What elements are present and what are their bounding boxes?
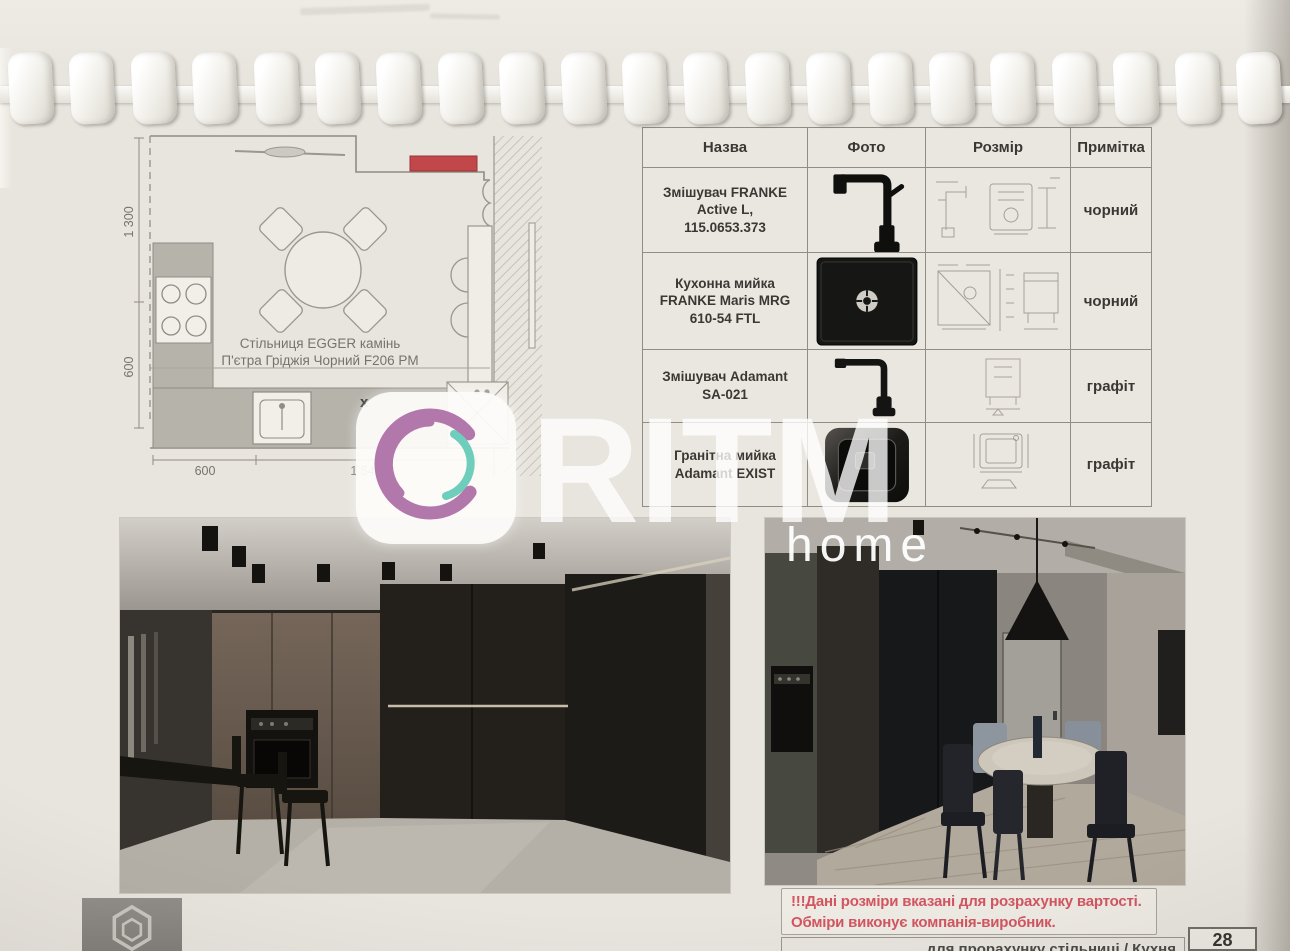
spiral-binding [0, 46, 1290, 132]
size-drawing-cell [926, 168, 1071, 253]
binding-comb-band [191, 51, 239, 125]
page-number-box: 28 [1188, 927, 1257, 951]
binding-comb-band [560, 51, 608, 125]
faucet-dimension-sketch [928, 170, 1068, 250]
dim-bottom-left: 600 [195, 464, 216, 478]
title-block: для прорахунку стільниці / Кухня [781, 937, 1185, 951]
floor-plan-drawing: x Стільниця EGGER камінь П'єтра Гріджія … [113, 130, 557, 486]
binding-comb-band [1174, 51, 1222, 125]
binding-comb [432, 46, 493, 132]
dim-bottom-right: 1 540 [350, 464, 381, 478]
binding-comb-band [990, 51, 1038, 125]
sink-dimension-sketch [928, 426, 1068, 504]
black-square-sink-photo [813, 255, 921, 348]
row-name: Змішувач Adamant SA-021 [643, 350, 808, 423]
binding-comb-band [621, 51, 669, 125]
kitchen-render-left [120, 518, 730, 893]
black-faucet-photo [824, 351, 910, 421]
binding-comb [677, 46, 738, 132]
dim-left-lower: 600 [122, 357, 136, 378]
binding-comb [125, 46, 186, 132]
sink-dimension-sketch [928, 255, 1068, 347]
row-name: Гранітна мийка Adamant EXIST [643, 423, 808, 507]
binding-comb [800, 46, 861, 132]
binding-comb [248, 46, 309, 132]
title-block-text: для прорахунку стільниці / Кухня [927, 941, 1176, 951]
seat-arc [451, 258, 468, 292]
binding-comb-band [744, 51, 792, 125]
column-header-photo: Фото [808, 128, 926, 168]
worktop-label-line2: П'єтра Гріджія Чорний F206 PM [221, 353, 418, 368]
disclaimer-line1: !!!Дані розміри вказані для розрахунку в… [791, 892, 1156, 913]
seat-arc [451, 303, 468, 337]
product-photo-cell [808, 168, 926, 253]
right-counter [468, 226, 492, 402]
size-drawing-cell [926, 423, 1071, 507]
binding-comb-band [1235, 51, 1283, 125]
disclaimer-line2: Обміри виконує компанія-виробник. [791, 913, 1156, 934]
tv-panel [1158, 630, 1185, 735]
binding-comb [2, 46, 63, 132]
binding-comb-band [928, 51, 976, 125]
column-header-name: Назва [643, 128, 808, 168]
red-radiator [410, 156, 477, 171]
binding-comb-band [437, 51, 485, 125]
worktop-label-line1: Стільниця EGGER камінь [240, 336, 401, 351]
bottle [1033, 716, 1042, 758]
built-in-oven [771, 666, 813, 752]
kitchen-floor-plan: x Стільниця EGGER камінь П'єтра Гріджія … [113, 130, 557, 486]
dark-column [817, 546, 879, 853]
size-drawing-cell [926, 253, 1071, 350]
binding-comb-band [130, 51, 178, 125]
page-edge-shadow [1244, 0, 1290, 951]
binding-comb [923, 46, 984, 132]
binding-comb [555, 46, 616, 132]
x-mark: x [360, 394, 369, 411]
kitchen-render-photo-left [120, 518, 730, 893]
column-header-note: Примітка [1071, 128, 1152, 168]
binding-comb [63, 46, 124, 132]
company-logo-glyph [104, 898, 160, 951]
binding-comb-band [1112, 51, 1160, 125]
photographed-document-page: x Стільниця EGGER камінь П'єтра Гріджія … [0, 0, 1290, 951]
size-drawing-cell [926, 350, 1071, 423]
spec-table: Назва Фото Розмір Примітка Змішувач FRAN… [642, 127, 1152, 507]
binding-comb-band [376, 51, 424, 125]
dark-granite-sink-photo [817, 424, 917, 506]
disclaimer-note: !!!Дані розміри вказані для розрахунку в… [781, 888, 1157, 935]
binding-comb [1169, 46, 1230, 132]
binding-comb-band [683, 51, 731, 125]
binding-comb-band [7, 51, 55, 125]
binding-comb-band [805, 51, 853, 125]
binding-comb [1230, 46, 1290, 132]
binding-comb-band [69, 51, 117, 125]
binding-comb-band [1051, 51, 1099, 125]
binding-comb [739, 46, 800, 132]
binding-comb-band [314, 51, 362, 125]
row-note: чорний [1071, 168, 1152, 253]
row-name: Кухонна мийка FRANKE Maris MRG 610-54 FT… [643, 253, 808, 350]
binding-comb [1046, 46, 1107, 132]
product-photo-cell [808, 423, 926, 507]
dim-left-upper: 1 300 [122, 206, 136, 237]
row-note: чорний [1071, 253, 1152, 350]
dining-table [285, 232, 361, 308]
binding-comb [493, 46, 554, 132]
company-logo [82, 898, 182, 951]
ceiling-light-lens [265, 147, 305, 157]
dishwasher-symbol [447, 382, 508, 444]
window-symbol [529, 223, 535, 348]
black-faucet-photo [821, 168, 913, 253]
product-photo-cell [808, 350, 926, 423]
column-header-size: Розмір [926, 128, 1071, 168]
row-name: Змішувач FRANKE Active L, 115.0653.373 [643, 168, 808, 253]
binding-comb [984, 46, 1045, 132]
binding-comb [862, 46, 923, 132]
binding-comb [616, 46, 677, 132]
faucet-dimension-sketch [928, 353, 1068, 419]
page-number: 28 [1212, 929, 1232, 949]
product-photo-cell [808, 253, 926, 350]
binding-comb [370, 46, 431, 132]
binding-comb [186, 46, 247, 132]
row-note: графіт [1071, 423, 1152, 507]
binding-comb-band [498, 51, 546, 125]
binding-comb [1107, 46, 1168, 132]
binding-comb [309, 46, 370, 132]
binding-comb-band [253, 51, 301, 125]
kitchen-render-right [765, 518, 1185, 885]
binding-comb-band [867, 51, 915, 125]
kitchen-render-photo-right [765, 518, 1185, 885]
row-note: графіт [1071, 350, 1152, 423]
